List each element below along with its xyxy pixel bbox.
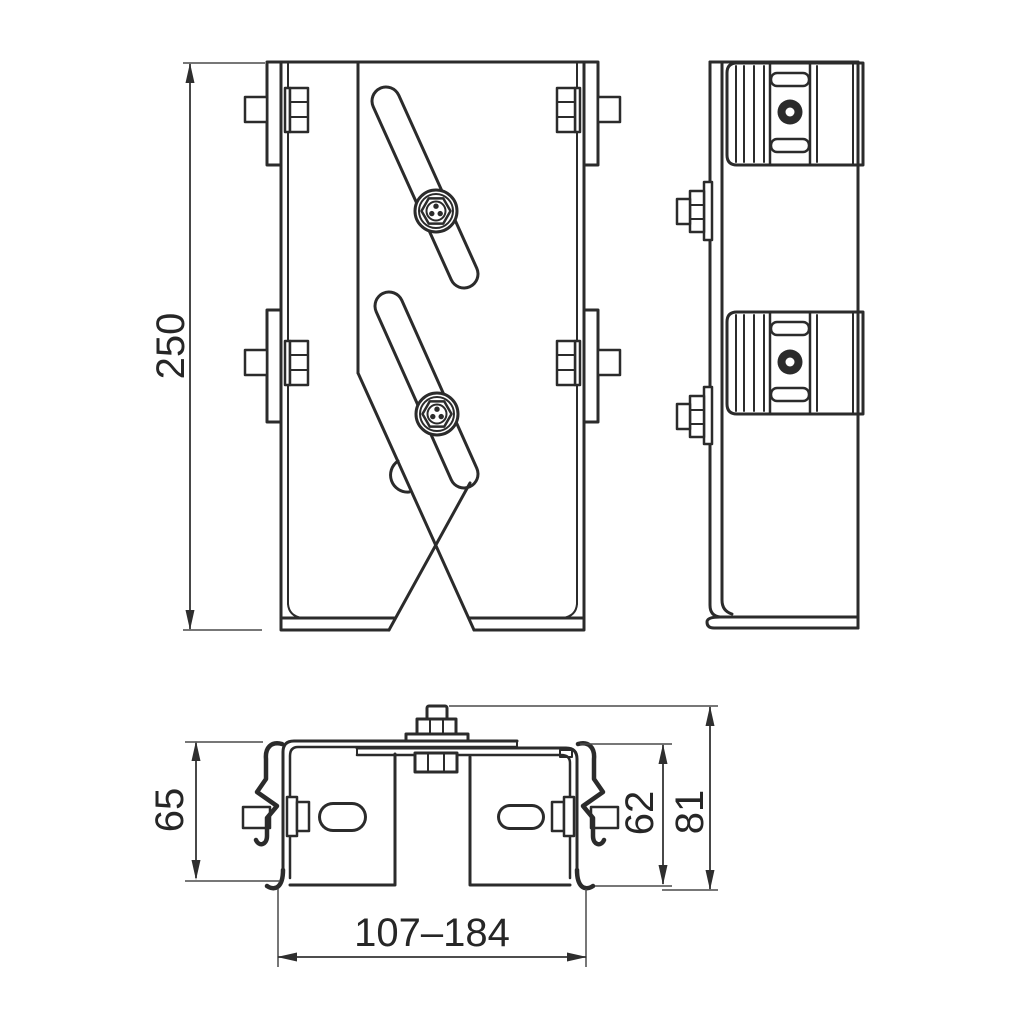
clamp-tooth: [771, 322, 809, 335]
clamp-tooth: [771, 73, 809, 86]
clamp-tooth: [771, 388, 809, 401]
bolt-shaft: [598, 350, 620, 375]
bolt-dot: [433, 204, 438, 209]
bolt-dot: [430, 414, 435, 419]
lower-hex-nut: [415, 753, 457, 772]
clamp-hole-center: [786, 358, 795, 367]
bolt-washer: [552, 802, 564, 831]
bolt-hex-head: [690, 191, 704, 232]
bolt-tip: [677, 404, 690, 429]
dimension-label-inner-height: 62: [618, 791, 662, 836]
dimension-label-outer-height: 81: [668, 790, 712, 835]
dimension-label-depth: 65: [148, 788, 192, 833]
slot-bolt-2: [416, 393, 458, 435]
clamp-hole-center: [786, 108, 795, 117]
bolt-tip: [677, 199, 690, 224]
bolt-shaft: [245, 350, 267, 375]
bolt-washer: [287, 797, 297, 836]
hex-nut: [557, 88, 575, 132]
hex-nut: [290, 341, 308, 385]
bolt-washer-plate: [406, 734, 468, 741]
bolt-washer: [564, 797, 574, 836]
slot-bolt-1: [415, 190, 457, 232]
dimension-label-height: 250: [149, 313, 193, 380]
bolt-hex-head: [690, 396, 704, 437]
bolt-dot: [434, 407, 439, 412]
bolt-dot: [429, 211, 434, 216]
clamp-tooth: [771, 139, 809, 152]
bolt-shaft: [245, 97, 267, 122]
bolt-dot: [438, 211, 443, 216]
technical-drawing-canvas: 250 65 62 81 107–184: [0, 0, 1024, 1024]
dimension-label-width-range: 107–184: [354, 911, 510, 955]
hex-nut: [417, 719, 456, 734]
hex-nut: [290, 88, 308, 132]
bolt-shaft: [598, 97, 620, 122]
bolt-dot: [439, 414, 444, 419]
hex-nut: [557, 341, 575, 385]
drawing-background: [0, 0, 1024, 1024]
bolt-washer: [297, 802, 309, 831]
